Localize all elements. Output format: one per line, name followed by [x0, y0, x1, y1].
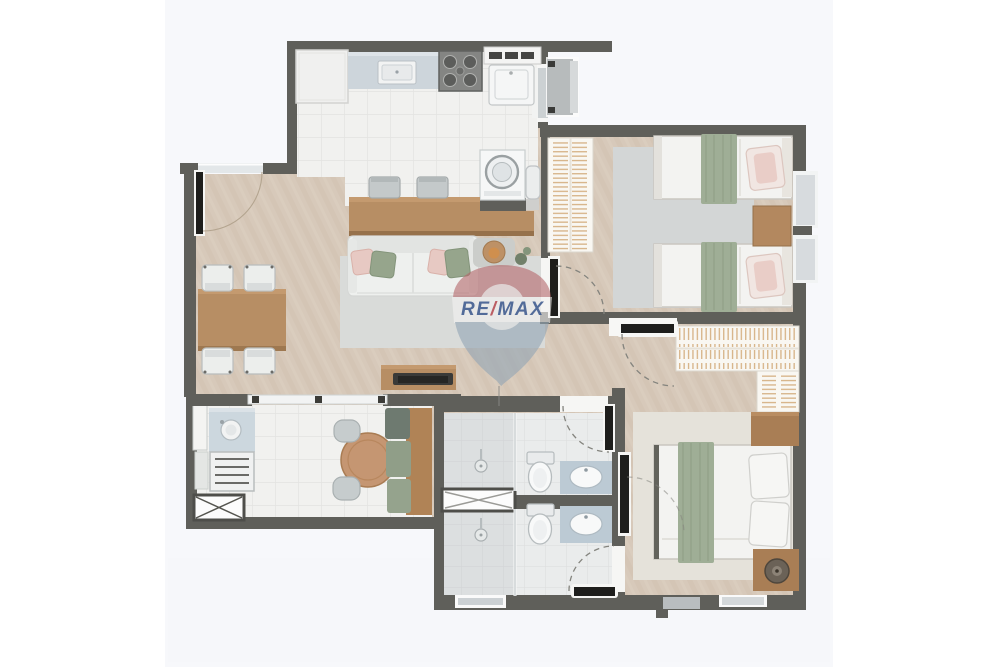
svg-text:RE/MAX: RE/MAX	[461, 299, 544, 320]
